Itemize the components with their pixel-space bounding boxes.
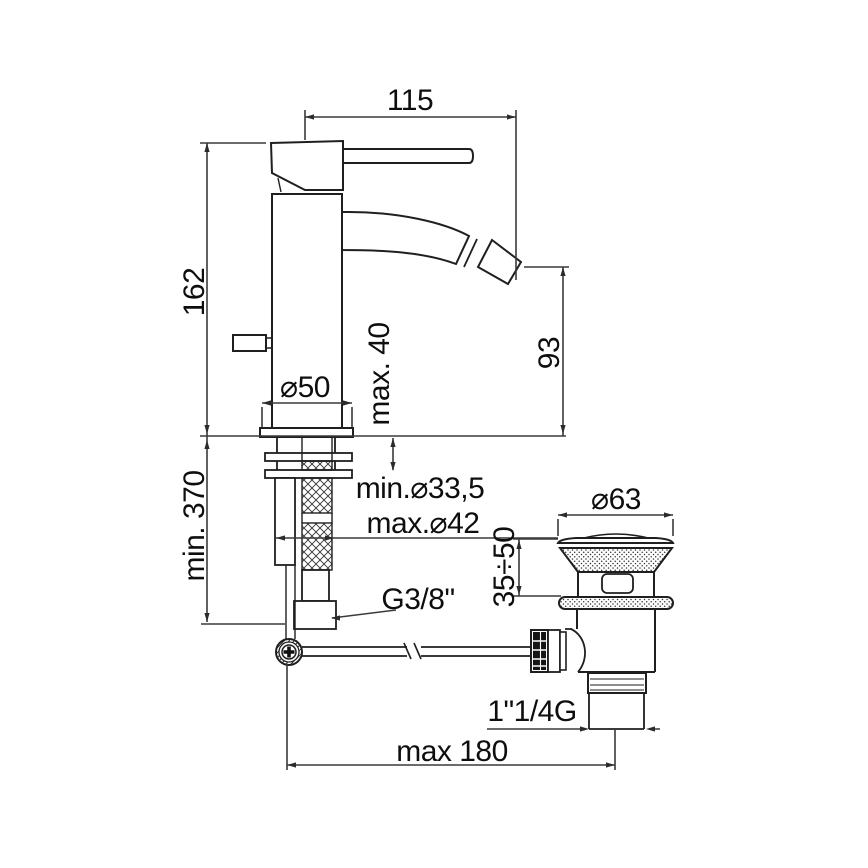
dim-spout-height-label: 93 xyxy=(535,337,565,369)
dim-hole-min-label: min.⌀33,5 xyxy=(356,474,485,504)
dim-handle-width-label: 115 xyxy=(387,86,433,116)
flex-hose-segment xyxy=(302,461,332,470)
faucet-spout xyxy=(342,212,469,264)
rod-nut-collar xyxy=(548,630,560,672)
flex-hose-segment xyxy=(302,478,332,513)
drain-gasket-cone xyxy=(560,548,672,572)
drain-tailpipe xyxy=(589,693,644,729)
popup-rod-joint xyxy=(276,639,531,665)
hose-end-fitting xyxy=(302,570,329,601)
shank-washer xyxy=(265,453,352,461)
dim-base-diameter-label: ⌀50 xyxy=(280,373,330,403)
technical-drawing-canvas: 115 162 max. 40 93 ⌀50 min. 370 min.⌀33,… xyxy=(0,0,868,868)
flex-hose-segment xyxy=(302,523,332,570)
drain-flange xyxy=(558,538,673,543)
drain-overflow-slot xyxy=(602,574,633,593)
rod-nut-collar2 xyxy=(560,632,566,670)
dim-hose-length-label: min. 370 xyxy=(180,470,210,581)
dim-rod-reach-label: max 180 xyxy=(396,737,508,767)
dimension-arrowheads xyxy=(204,114,673,767)
dim-clamp-range-label: 35÷50 xyxy=(490,527,520,608)
dim-deck-thickness-label: max. 40 xyxy=(365,322,395,425)
hose-inlet-nut xyxy=(294,601,336,629)
faucet-cap-detail xyxy=(278,178,281,192)
dim-body-height-label: 162 xyxy=(180,268,210,317)
dim-outlet-thread-label: 1"1/4G xyxy=(487,697,576,727)
dim-hole-max-label: max.⌀42 xyxy=(367,509,480,539)
dim-flange-diameter-label: ⌀63 xyxy=(591,485,641,515)
popup-knob xyxy=(233,335,266,351)
faucet-handle xyxy=(343,149,473,163)
shank-locknut xyxy=(265,470,352,478)
drain-boss xyxy=(565,629,585,672)
drain-washer xyxy=(559,597,673,609)
dim-inlet-thread-label: G3/8" xyxy=(381,585,454,615)
faucet-cap xyxy=(271,141,343,190)
drain-body xyxy=(577,609,655,672)
popup-rod-guide xyxy=(275,478,295,565)
spout-aerator-tip xyxy=(478,240,521,284)
